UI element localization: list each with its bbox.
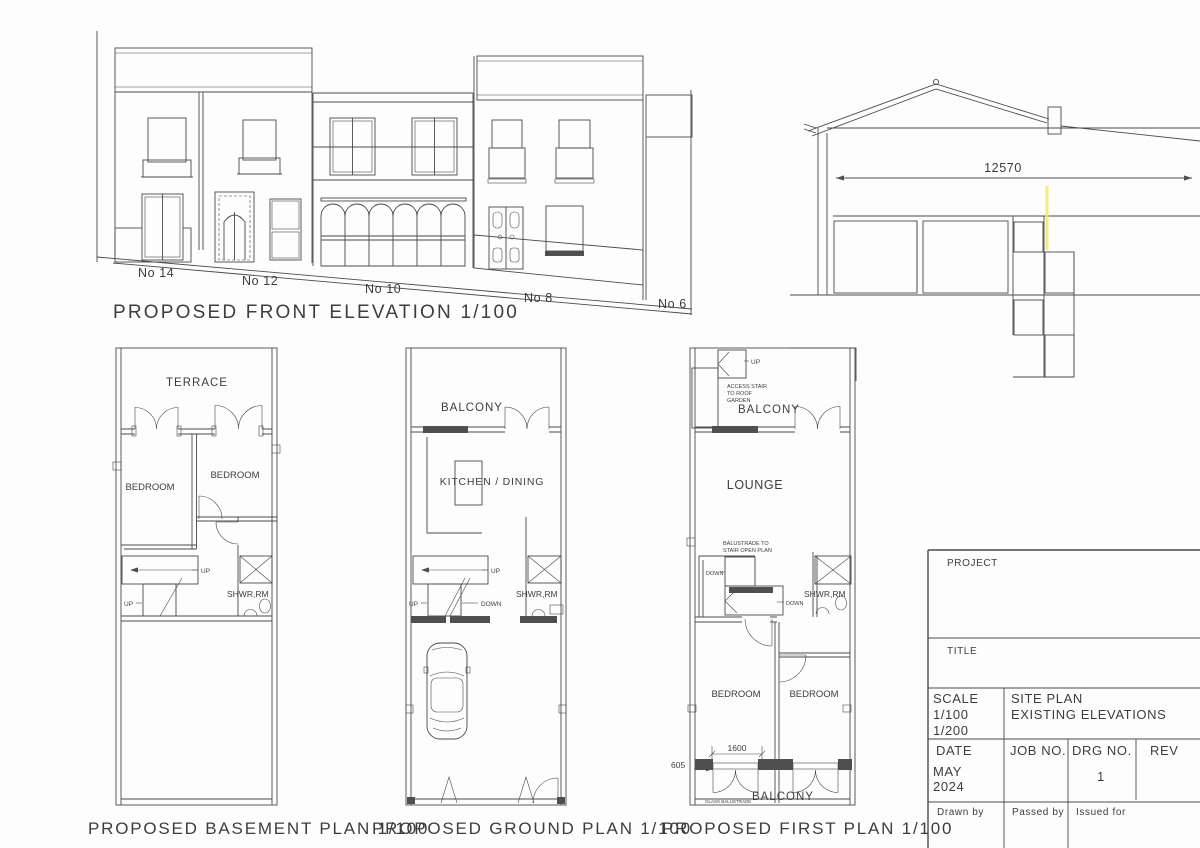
label-bedroom-first-2: BEDROOM xyxy=(789,689,838,700)
dimension-1600: 1600 xyxy=(728,743,747,753)
stair-label-down-first-2: DOWN xyxy=(786,601,803,607)
front-elevation-title: PROPOSED FRONT ELEVATION 1/100 xyxy=(113,302,519,323)
stair-label-down-first-1: DOWN xyxy=(706,571,723,577)
titleblock-scale-1: 1/100 xyxy=(933,707,969,722)
ground-caption: PROPOSED GROUND PLAN 1/100 xyxy=(372,819,692,838)
stair-label-up-first: UP xyxy=(751,359,760,366)
titleblock-passed-by-label: Passed by xyxy=(1012,807,1064,818)
dimension-605: 605 xyxy=(671,760,685,770)
section-elevation: 12570 xyxy=(790,79,1200,381)
titleblock-sheet-title-2: EXISTING ELEVATIONS xyxy=(1011,707,1166,722)
label-lounge: LOUNGE xyxy=(727,478,783,492)
titleblock-sheet-title-1: SITE PLAN xyxy=(1011,691,1083,706)
label-bedroom-2: BEDROOM xyxy=(210,470,259,481)
label-balustrade-1: BALUSTRADE TO xyxy=(723,541,769,547)
first-caption: PROPOSED FIRST PLAN 1/100 xyxy=(662,819,953,838)
house-label-14: No 14 xyxy=(138,266,174,280)
label-access-stair-2: TO ROOF xyxy=(727,391,753,397)
titleblock-drawn-by-label: Drawn by xyxy=(937,807,984,818)
label-shwr-basement: SHWR,RM xyxy=(227,589,269,599)
titleblock-title-label: TITLE xyxy=(947,646,977,657)
drawing-canvas: No 14 No 12 No 10 No 8 No 6 PROPOSED FRO… xyxy=(0,0,1200,848)
label-balcony-first-top: BALCONY xyxy=(738,404,800,416)
car-plan-symbol xyxy=(424,643,470,739)
label-kitchen-dining: KITCHEN / DINING xyxy=(440,476,544,488)
label-glass-balustrade: GLASS BALUSTRADE xyxy=(705,799,751,804)
house-label-8: No 8 xyxy=(524,291,553,305)
ground-plan: BALCONY KITCHEN / DINING UP UP DOWN SHWR… xyxy=(372,348,692,838)
titleblock-date-year: 2024 xyxy=(933,779,964,794)
stair-label-up-1: UP xyxy=(201,568,210,575)
first-floor-plan: UP ACCESS STAIR TO ROOF GARDEN BALCONY L… xyxy=(662,348,953,838)
titleblock-date-month: MAY xyxy=(933,764,962,779)
label-access-stair-1: ACCESS STAIR xyxy=(727,384,767,390)
stair-label-down-ground: DOWN xyxy=(481,601,502,608)
label-balustrade-2: STAIR OPEN PLAN xyxy=(723,548,772,554)
house-label-12: No 12 xyxy=(242,274,278,288)
label-terrace: TERRACE xyxy=(166,377,228,389)
titleblock-job-no-label: JOB NO. xyxy=(1010,743,1066,758)
label-shwr-ground: SHWR,RM xyxy=(516,589,558,599)
label-shwr-first: SHWR,RM xyxy=(804,589,846,599)
title-block: PROJECT TITLE SCALE 1/100 1/200 SITE PLA… xyxy=(928,550,1200,848)
titleblock-scale-label: SCALE xyxy=(933,691,979,706)
label-balcony-first-bottom: BALCONY xyxy=(752,791,814,803)
label-bedroom-first-1: BEDROOM xyxy=(711,689,760,700)
titleblock-date-label: DATE xyxy=(936,743,972,758)
label-bedroom-1: BEDROOM xyxy=(125,482,174,493)
titleblock-scale-2: 1/200 xyxy=(933,723,969,738)
section-dimension: 12570 xyxy=(984,161,1022,175)
house-label-10: No 10 xyxy=(365,282,401,296)
front-elevation: No 14 No 12 No 10 No 8 No 6 PROPOSED FRO… xyxy=(97,31,692,323)
basement-plan: TERRACE BEDROOM BEDROOM UP UP SHWR,RM PR… xyxy=(88,348,429,838)
house-label-6: No 6 xyxy=(658,297,687,311)
stair-label-up-ground-2: UP xyxy=(409,601,418,608)
titleblock-issued-for-label: Issued for xyxy=(1076,807,1126,818)
architectural-drawing-sheet: No 14 No 12 No 10 No 8 No 6 PROPOSED FRO… xyxy=(0,0,1200,848)
titleblock-drg-no-label: DRG NO. xyxy=(1072,743,1132,758)
label-balcony-ground: BALCONY xyxy=(441,402,503,414)
stair-label-up-2: UP xyxy=(124,601,133,608)
stair-label-up-ground-1: UP xyxy=(491,568,500,575)
titleblock-project-label: PROJECT xyxy=(947,558,998,569)
titleblock-drg-no-value: 1 xyxy=(1097,769,1105,784)
titleblock-rev-label: REV xyxy=(1150,743,1179,758)
